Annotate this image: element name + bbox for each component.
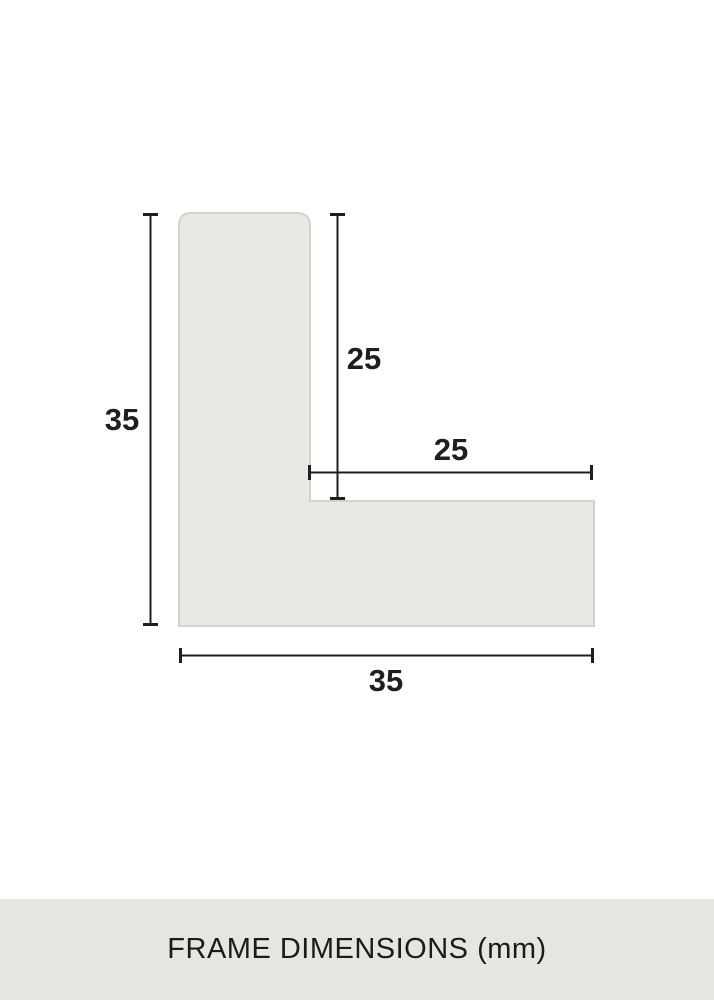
dim-label-inner-width: 25 [421,430,481,470]
profile-drawing [0,0,714,1000]
dim-label-outer-width: 35 [356,661,416,701]
dim-label-inner-height: 25 [334,339,394,379]
caption-band: FRAME DIMENSIONS (mm) [0,899,714,1000]
frame-profile-shape [179,213,594,626]
frame-dimension-diagram: 35 25 25 35 FRAME DIMENSIONS (mm) [0,0,714,1000]
dim-label-outer-height: 35 [92,400,152,440]
caption-text: FRAME DIMENSIONS (mm) [167,933,546,966]
